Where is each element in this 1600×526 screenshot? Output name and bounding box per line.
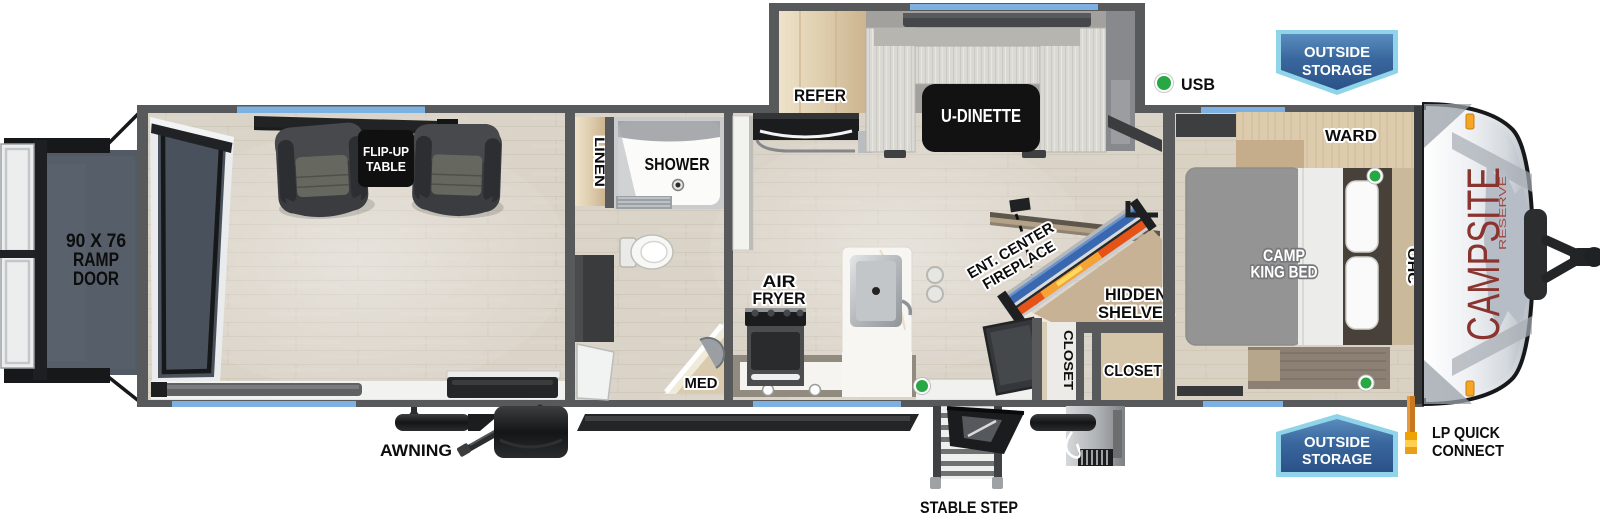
svg-text:U-DINETTE: U-DINETTE <box>941 106 1021 126</box>
svg-text:HIDDEN: HIDDEN <box>1105 286 1167 304</box>
svg-text:RESERVE: RESERVE <box>1497 176 1509 250</box>
svg-text:FRYER: FRYER <box>753 289 806 308</box>
svg-text:CONNECT: CONNECT <box>1432 443 1504 460</box>
svg-text:STORAGE: STORAGE <box>1302 451 1372 468</box>
svg-text:SHELVES: SHELVES <box>1098 304 1174 322</box>
svg-text:USB: USB <box>1181 76 1215 94</box>
svg-text:STORAGE: STORAGE <box>1302 62 1372 79</box>
svg-text:REFER: REFER <box>794 86 846 105</box>
svg-text:OUTSIDE: OUTSIDE <box>1304 44 1370 61</box>
svg-text:CLOSET: CLOSET <box>1061 330 1075 390</box>
svg-text:LP QUICK: LP QUICK <box>1432 425 1501 442</box>
svg-text:CLOSET: CLOSET <box>1104 363 1162 380</box>
svg-text:STABLE STEP: STABLE STEP <box>920 499 1018 517</box>
svg-text:90 X 76: 90 X 76 <box>66 231 126 252</box>
svg-text:OUTSIDE: OUTSIDE <box>1304 434 1370 451</box>
svg-text:TABLE: TABLE <box>366 160 406 174</box>
svg-text:FLIP-UP: FLIP-UP <box>363 145 409 159</box>
svg-text:WARD: WARD <box>1325 128 1377 145</box>
svg-text:AWNING: AWNING <box>380 442 452 460</box>
svg-text:LINEN: LINEN <box>592 137 607 187</box>
svg-text:RAMP: RAMP <box>73 250 119 271</box>
svg-text:KING BED: KING BED <box>1251 264 1318 282</box>
svg-text:MED: MED <box>685 376 718 392</box>
svg-text:SHOWER: SHOWER <box>645 154 710 174</box>
svg-text:CAMP: CAMP <box>1263 247 1305 265</box>
svg-text:DOOR: DOOR <box>73 269 119 290</box>
